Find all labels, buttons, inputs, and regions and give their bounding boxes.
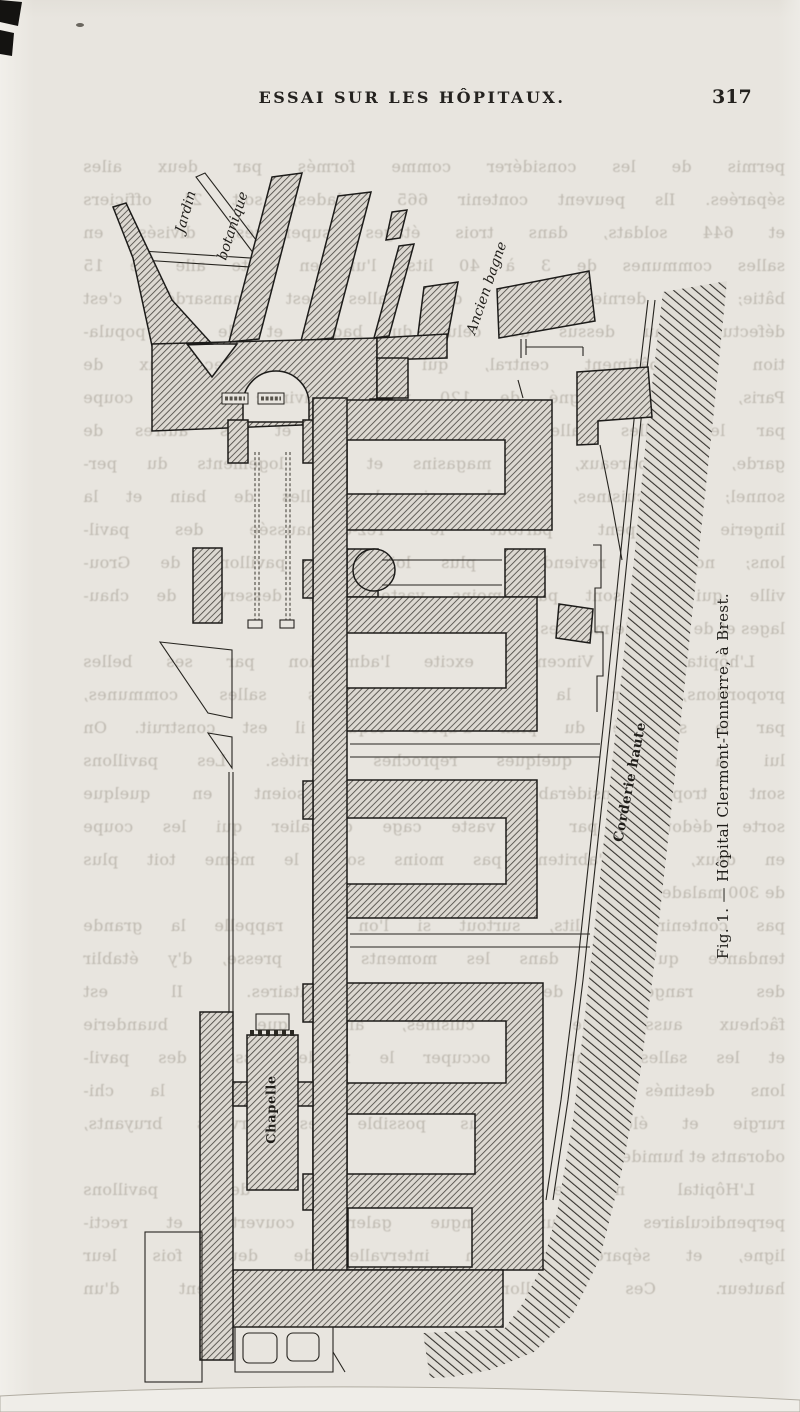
l-shaped-building (577, 367, 652, 445)
running-header: ESSAI SUR LES HÔPITAUX. (212, 88, 612, 107)
corderie-band (423, 281, 727, 1378)
page-curl (0, 1387, 800, 1412)
left-wing (200, 1012, 233, 1360)
bottom-wing (233, 1270, 503, 1327)
central-spine (313, 398, 347, 1285)
ward-pavilions (193, 398, 552, 1360)
label-chapelle: Chapelle (265, 1035, 280, 1185)
scan-corner-marks (0, 0, 84, 56)
book-page: permis de les considérer comme formés pa… (0, 0, 800, 1412)
page-number: 317 (712, 86, 772, 108)
chapel-portico (256, 1014, 289, 1030)
small-square-building (556, 604, 593, 643)
figure-caption: Fig. 1. — Hôpital Clermont-Tonnerre, à B… (714, 566, 732, 986)
arch-leg (228, 420, 248, 463)
radiating-wings (113, 173, 458, 358)
hospital-floor-plan (0, 0, 800, 1412)
service-block (313, 400, 552, 530)
